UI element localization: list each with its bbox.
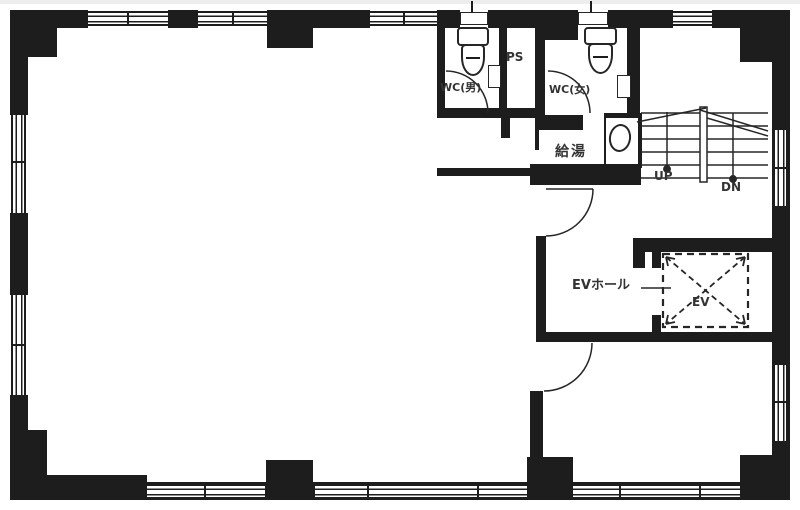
label-kitchenette: 給湯 <box>555 145 587 159</box>
label-up: UP <box>654 170 673 182</box>
stairs-rail <box>700 107 707 182</box>
label-ps: PS <box>506 51 523 63</box>
linework-layer <box>0 0 800 510</box>
label-wc-men: WC(男) <box>440 82 481 93</box>
label-wc-women: WC(女) <box>549 84 590 95</box>
door-ev-hall <box>546 189 593 236</box>
label-ev: EV <box>692 296 709 308</box>
label-dn: DN <box>721 181 741 193</box>
elevator-symbol <box>663 254 748 327</box>
floor-plan: WC(男) PS WC(女) 給湯 UP DN EVホール EV <box>0 0 800 510</box>
label-ev-hall: EVホール <box>572 279 630 292</box>
stairs-right-flight <box>707 113 768 178</box>
door-room-se <box>544 343 592 391</box>
door-arcs <box>446 71 593 391</box>
